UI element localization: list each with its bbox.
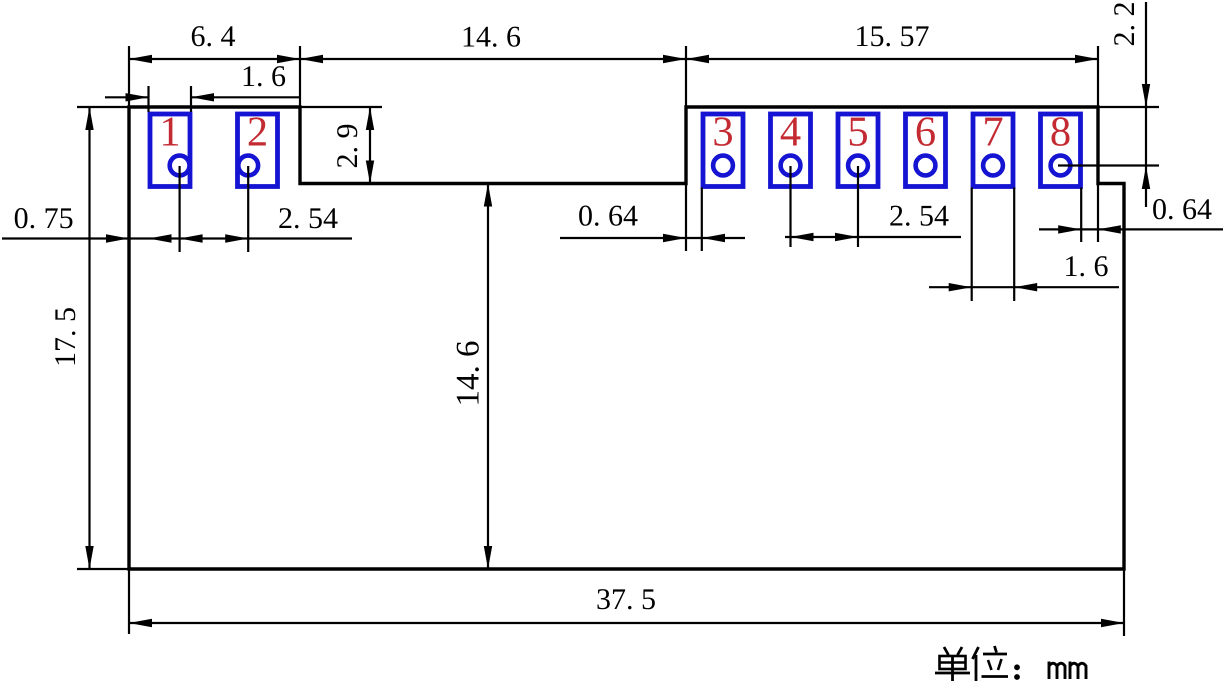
svg-text:6: 6	[915, 109, 936, 156]
svg-text:1. 6: 1. 6	[241, 60, 286, 93]
svg-text:6. 4: 6. 4	[191, 20, 236, 53]
svg-text:1: 1	[159, 109, 180, 156]
svg-text:2: 2	[247, 109, 268, 156]
svg-text:14. 6: 14. 6	[451, 341, 487, 407]
svg-text:0. 64: 0. 64	[1152, 193, 1212, 226]
svg-text:4: 4	[780, 109, 801, 156]
svg-text:3: 3	[712, 109, 733, 156]
svg-text:37. 5: 37. 5	[596, 583, 656, 616]
svg-text:2. 54: 2. 54	[278, 202, 338, 235]
svg-text:1. 6: 1. 6	[1064, 250, 1109, 283]
svg-text:15. 57: 15. 57	[855, 20, 930, 53]
svg-text:0. 64: 0. 64	[578, 200, 638, 233]
svg-text:2. 2: 2. 2	[1108, 2, 1141, 47]
svg-text:2. 54: 2. 54	[889, 200, 949, 233]
svg-text:14. 6: 14. 6	[461, 21, 521, 54]
svg-text:5: 5	[847, 109, 868, 156]
svg-text:2. 9: 2. 9	[331, 124, 364, 169]
svg-text:0. 75: 0. 75	[14, 202, 74, 235]
svg-text:17. 5: 17. 5	[49, 307, 82, 367]
svg-text:7: 7	[982, 109, 1003, 156]
svg-text:8: 8	[1050, 109, 1071, 156]
